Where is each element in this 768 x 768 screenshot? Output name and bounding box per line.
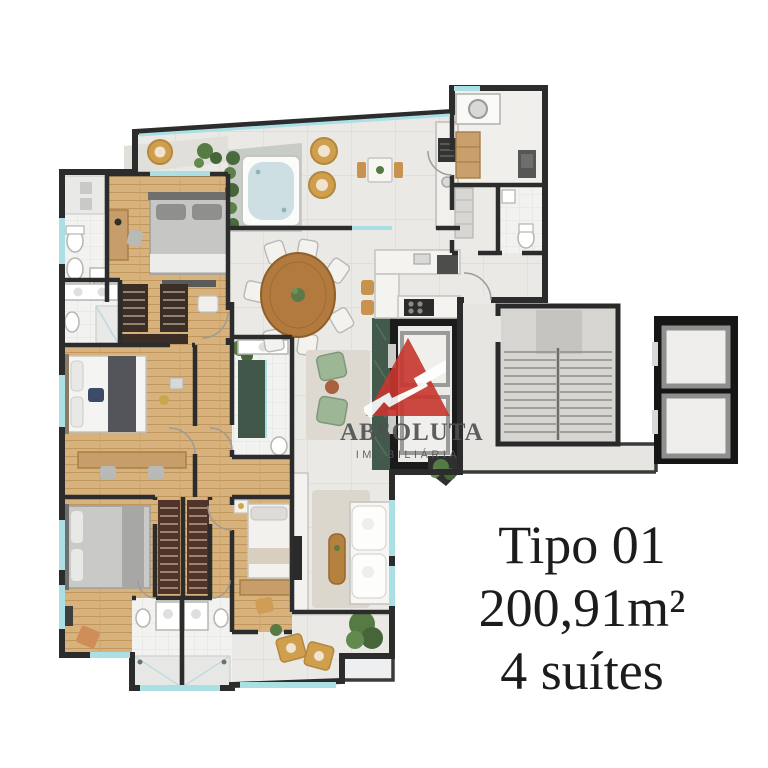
sitting-area — [306, 350, 370, 440]
wicker-chair — [148, 140, 172, 164]
suite1-desk — [108, 210, 128, 260]
hall-link-wood-floor — [232, 458, 292, 497]
unit-suites-label: 4 suítes — [432, 640, 732, 703]
stove — [404, 299, 434, 316]
tv — [294, 536, 302, 580]
elevator-car-2 — [664, 396, 728, 456]
elevator-car-1 — [664, 328, 728, 386]
floor-plan-page: ABSOLUTA IMOBILIÁRIA Tipo 01 200,91m² 4 … — [0, 0, 768, 768]
suite4-desk — [240, 580, 290, 595]
service-shelves — [456, 132, 480, 178]
elevator-bank — [652, 316, 738, 464]
kitchen-island — [375, 274, 399, 318]
common-areas — [372, 300, 738, 486]
unit-type-label: Tipo 01 — [432, 514, 732, 577]
private-elevator-car-1 — [402, 333, 448, 385]
suite2-desk — [78, 452, 186, 468]
coffee-table — [329, 534, 345, 584]
stairwell — [495, 306, 618, 444]
unit-area-label: 200,91m² — [432, 577, 732, 640]
unit-caption: Tipo 01 200,91m² 4 suítes — [432, 514, 732, 703]
private-elevator-hall — [372, 318, 460, 470]
green-marble-shower — [238, 360, 266, 438]
planter-box — [343, 657, 393, 680]
floor-lamp — [159, 395, 169, 405]
entry-door-opening — [464, 296, 491, 304]
wicker-chair — [311, 138, 337, 164]
fridge — [437, 255, 458, 274]
jacuzzi — [242, 156, 300, 226]
private-elevator-car-2 — [402, 397, 448, 453]
wicker-chair — [309, 172, 335, 198]
